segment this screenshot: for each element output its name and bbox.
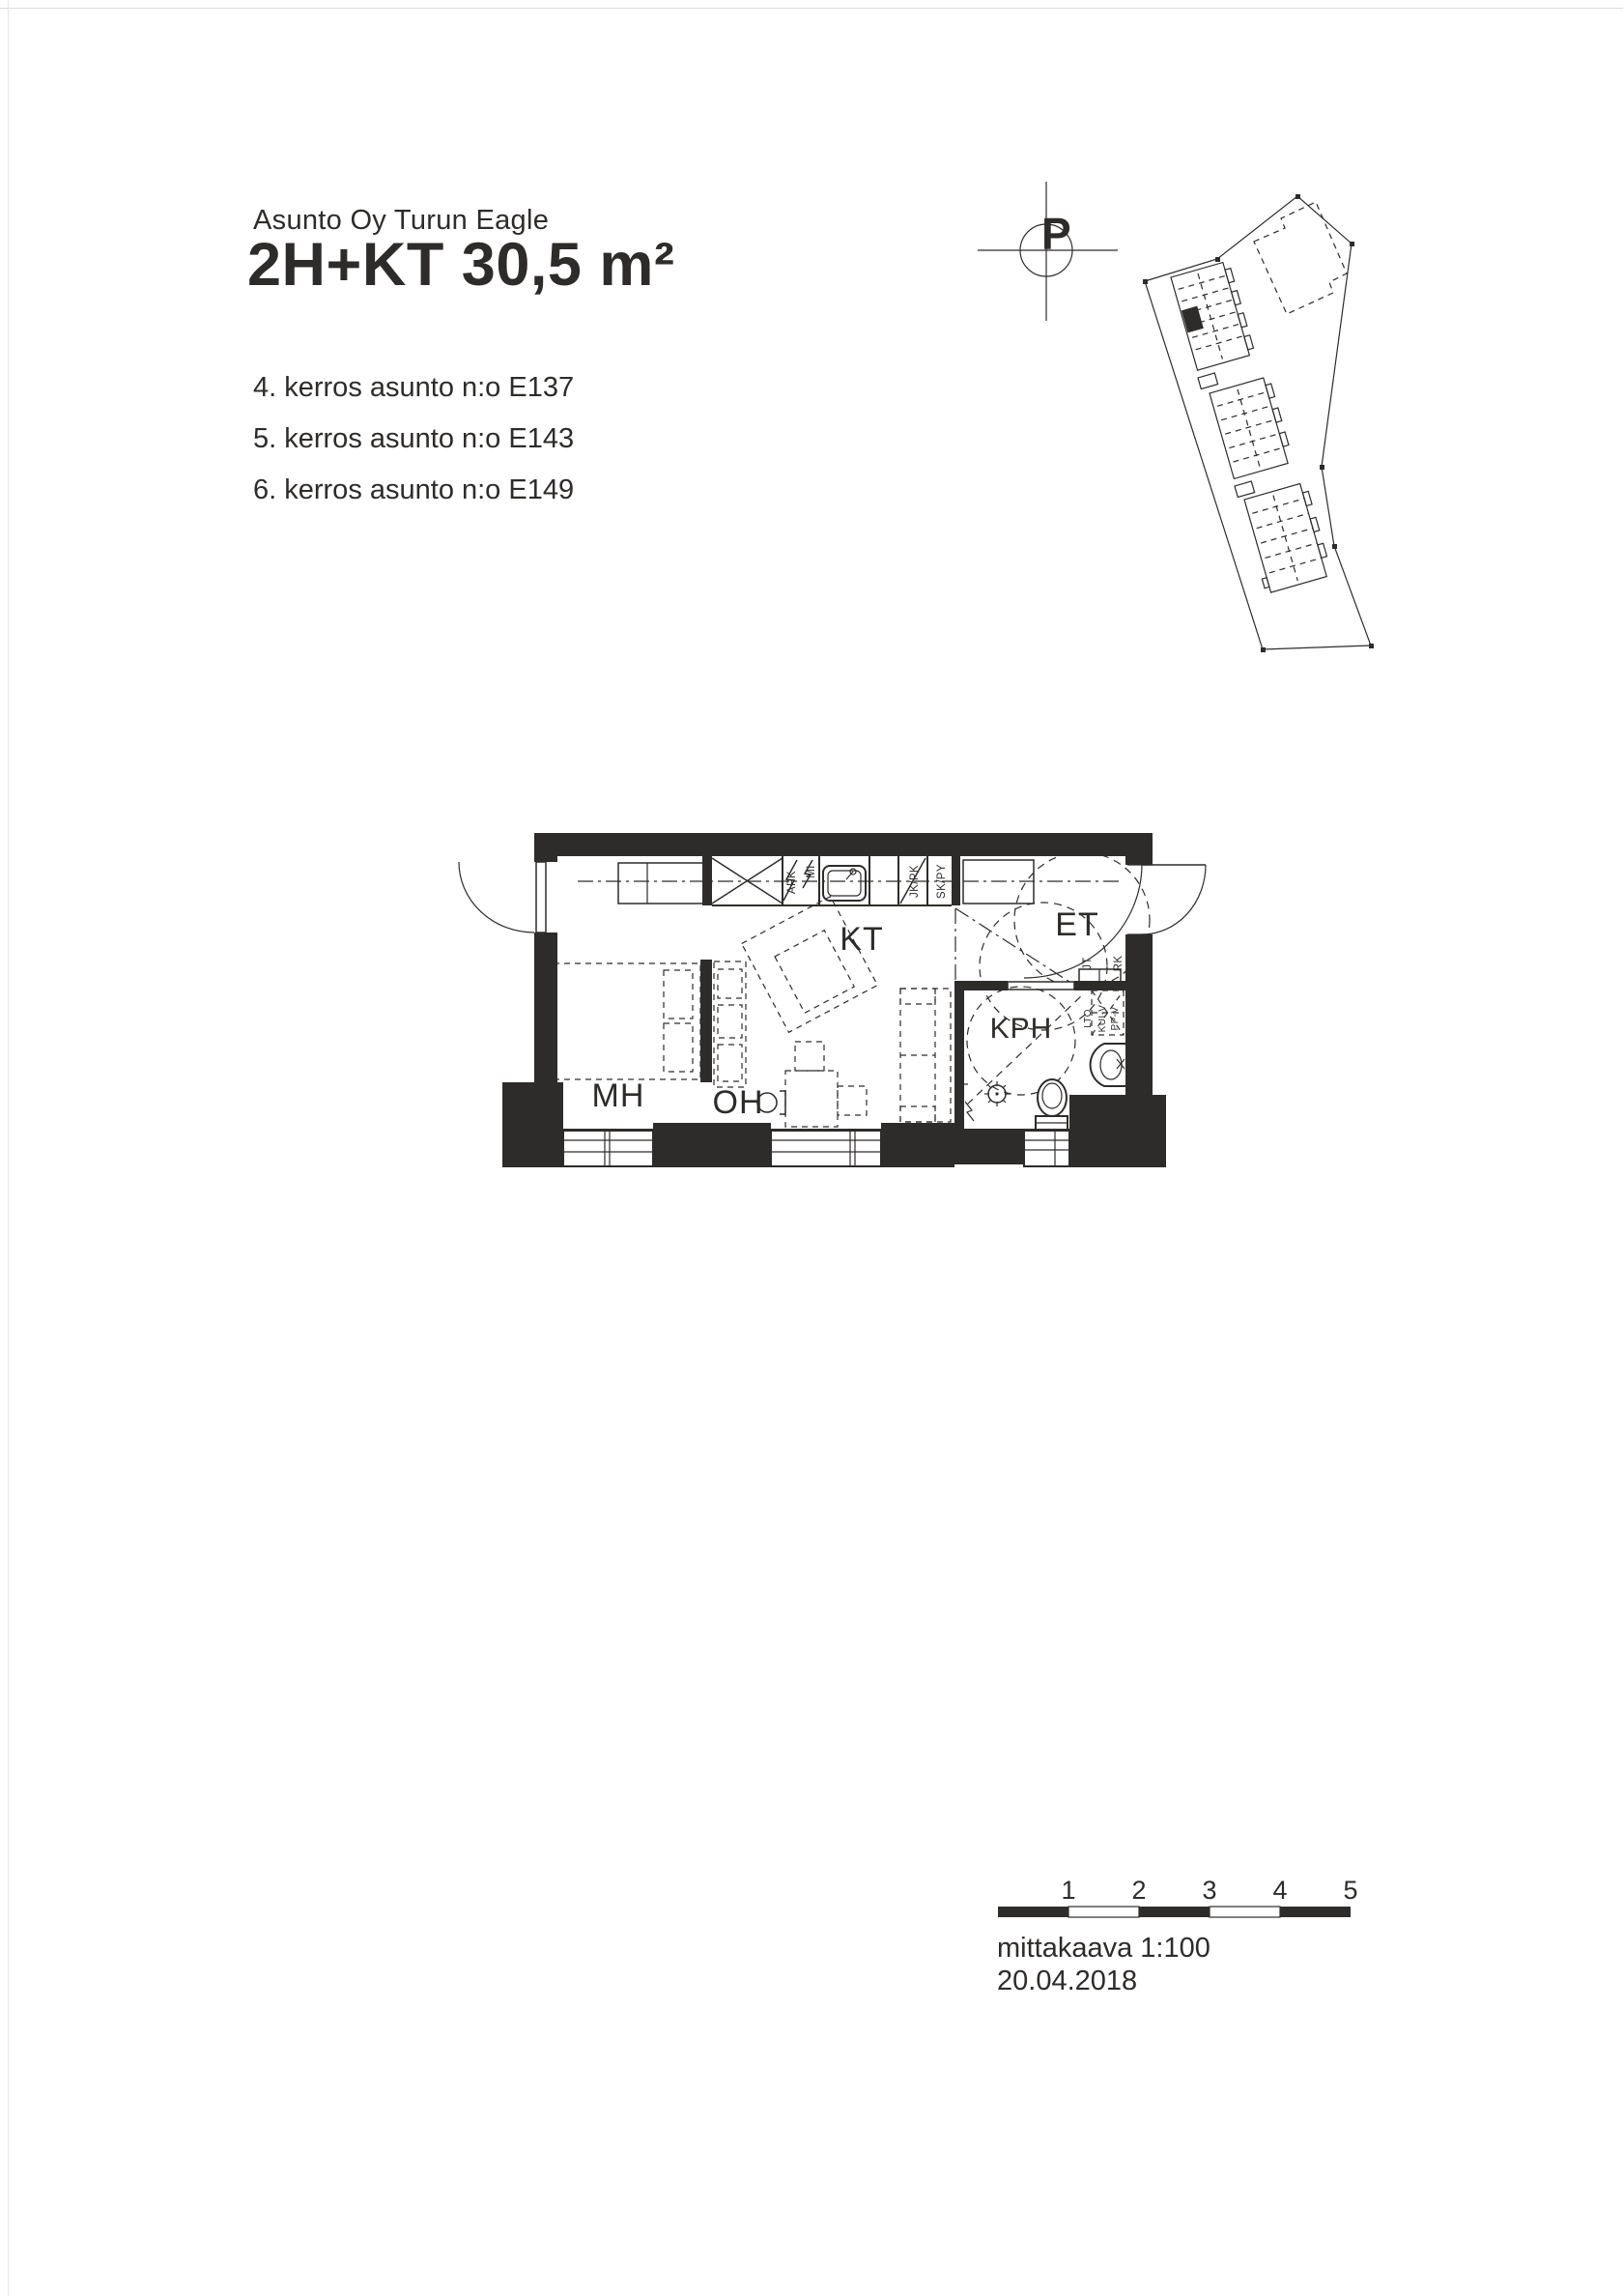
building-connector: [1235, 481, 1255, 497]
drawing-date: 20.04.2018: [997, 1966, 1137, 1997]
scale-bar: 1 2 3 4 5: [985, 1870, 1372, 1928]
kph-sliding-door: [1008, 982, 1074, 990]
jt-label: JT: [1082, 957, 1094, 970]
washbasin-icon: [1091, 1044, 1125, 1086]
shelf-unit: [714, 961, 746, 1087]
floor-plan: APK MI JK/PK SK/PY JT RK: [464, 812, 1198, 1218]
scale-segment: [1139, 1907, 1210, 1917]
scale-segment: [1210, 1907, 1280, 1917]
toilet-icon: [1036, 1079, 1068, 1130]
room-boundary-line: [955, 908, 1069, 982]
dining-table: [757, 1042, 867, 1127]
scale-segment: [1280, 1907, 1351, 1917]
building-block-2: [1210, 376, 1294, 478]
site-boundary-markers: [1143, 194, 1374, 652]
balcony-door: [459, 862, 546, 933]
site-boundary: [1145, 196, 1371, 649]
dishwasher-label: APK: [786, 871, 798, 894]
scale-tick: 5: [1343, 1876, 1357, 1905]
rk-label: RK: [1113, 956, 1125, 972]
scale-text: mittakaava 1:100: [997, 1933, 1210, 1965]
window: [563, 1131, 653, 1166]
walls: [502, 833, 1166, 1167]
entry-label: ET: [1055, 906, 1098, 943]
bed: [554, 963, 700, 1079]
kitchenette-label: KT: [840, 921, 883, 958]
north-compass: P: [956, 164, 1150, 338]
scale-tick: 2: [1131, 1876, 1146, 1905]
apartment-list-item: 6. kerros asunto n:o E149: [253, 465, 574, 516]
scan-edge-top: [0, 8, 1623, 9]
apartment-list: 4. kerros asunto n:o E137 5. kerros asun…: [253, 362, 574, 516]
mh-closet: [618, 863, 707, 904]
site-plan: [1140, 188, 1381, 662]
livingroom-label: OH: [713, 1084, 764, 1121]
building-block-3: [1239, 482, 1332, 594]
highlighted-unit-marker: [1182, 306, 1204, 333]
microwave-label: MI: [806, 865, 817, 878]
building-connector: [1198, 373, 1218, 388]
washer-dryer-reservation: LTO KUI-V PP-V: [1083, 990, 1124, 1035]
scale-tick: 1: [1061, 1876, 1075, 1905]
window: [771, 1131, 881, 1166]
window: [1024, 1131, 1069, 1166]
armchair: [742, 897, 878, 1033]
lto-label: LTO: [1083, 1009, 1094, 1028]
building-block-1: [1171, 261, 1255, 370]
scan-edge-left: [8, 0, 9, 2296]
scanned-floorplan-page: Asunto Oy Turun Eagle 2H+KT 30,5 m² 4. k…: [0, 0, 1623, 2296]
apartment-list-item: 5. kerros asunto n:o E143: [253, 414, 574, 465]
scale-tick: 3: [1202, 1876, 1216, 1905]
scale-segment: [1068, 1907, 1139, 1917]
sofa: [900, 989, 951, 1122]
scale-segment: [998, 1907, 1068, 1917]
washer-reservation-label: PP-V: [1110, 1007, 1121, 1031]
dryer-reservation-label: KUI-V: [1097, 1005, 1108, 1033]
entrance-door: [1127, 865, 1206, 934]
apartment-list-item: 4. kerros asunto n:o E137: [253, 362, 574, 414]
sink-icon: [823, 866, 866, 901]
apartment-type-title: 2H+KT 30,5 m²: [247, 230, 674, 300]
bedroom-label: MH: [592, 1077, 645, 1114]
scale-tick: 4: [1272, 1876, 1287, 1905]
bathroom-label: KPH: [990, 1013, 1053, 1045]
north-letter: P: [1041, 209, 1071, 259]
